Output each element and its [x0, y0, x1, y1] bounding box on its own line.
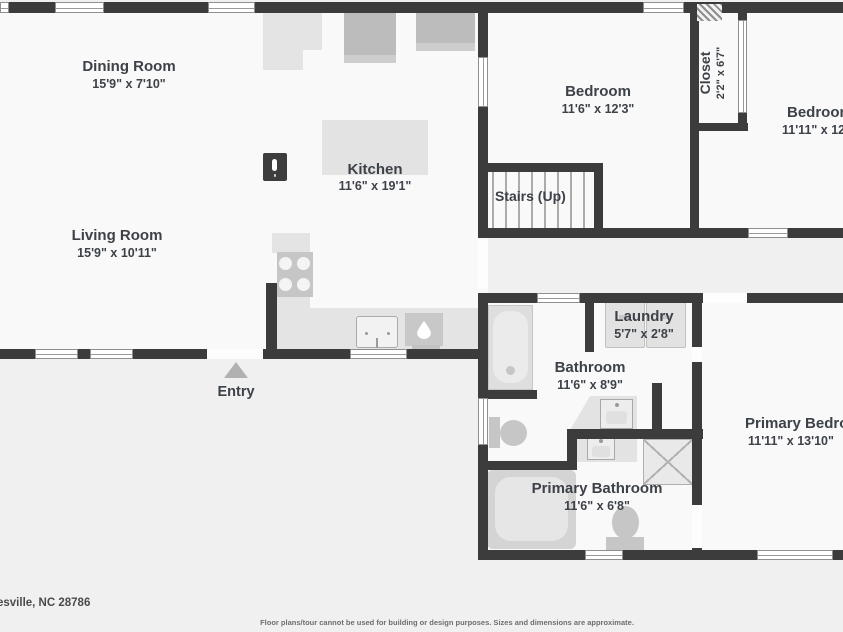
stove-burner [279, 278, 292, 291]
room-dims-kitchen: 11'6" x 19'1" [339, 179, 412, 193]
window-pane-line [758, 555, 832, 556]
room-label-primary-bathroom: Primary Bathroom [532, 480, 663, 497]
refrigerator [344, 13, 396, 55]
sink-faucet [376, 338, 378, 348]
kitchen-counter [272, 233, 310, 253]
window-pane-line [56, 8, 103, 9]
window [748, 228, 788, 238]
sink-faucet [615, 403, 619, 407]
sink-knob [387, 332, 390, 335]
room-dims-laundry: 5'7" x 2'8" [614, 327, 674, 341]
wall [266, 283, 277, 359]
door-opening [692, 505, 702, 548]
wall [478, 461, 577, 470]
wall [567, 429, 703, 439]
wall [738, 2, 747, 22]
vanity-sink [587, 436, 615, 460]
vanity-sink [600, 399, 633, 429]
appliance-handle [416, 43, 475, 51]
window [757, 550, 833, 560]
window-pane-line [743, 21, 744, 112]
address-text: esville, NC 28786 [0, 597, 90, 609]
sink-basin [592, 446, 610, 457]
toilet-tank [489, 417, 500, 448]
toilet-bowl [500, 420, 527, 446]
room-dims-primary-bathroom: 11'6" x 6'8" [564, 499, 630, 513]
window [35, 349, 78, 359]
window-pane-line [209, 8, 254, 9]
wall [478, 293, 843, 303]
disclaimer-text: Floor plans/tour cannot be used for buil… [147, 618, 747, 627]
stair-tread [492, 172, 494, 228]
door-opening [478, 240, 488, 288]
wall [478, 2, 488, 238]
water-appliance [405, 313, 443, 346]
sink-knob [365, 332, 368, 335]
room-label-laundry: Laundry [614, 308, 673, 325]
door-opening [703, 293, 747, 303]
tour-camera-icon[interactable] [263, 153, 287, 181]
shower [643, 439, 693, 485]
tour-camera-lens [272, 159, 277, 171]
bathtub-drain [506, 366, 515, 375]
stove-burner [279, 257, 292, 270]
room-dims-bedroom-1: 11'6" x 12'3" [562, 102, 635, 116]
window [738, 20, 747, 113]
window [478, 398, 488, 445]
kitchen-sink [356, 316, 398, 348]
wall [594, 163, 603, 238]
window [55, 2, 104, 13]
room-label-closet: Closet [697, 33, 715, 113]
room-label-closet-group: Closet 2'2" x 6'7" [697, 33, 735, 113]
window-pane-line [586, 555, 622, 556]
entry-marker-icon [224, 362, 248, 378]
room-label-kitchen: Kitchen [347, 161, 402, 178]
room-label-bedroom-2: Bedroom [787, 104, 843, 121]
room-label-bedroom-1: Bedroom [565, 83, 631, 100]
window-pane-line [483, 399, 484, 444]
refrigerator-handle [344, 55, 396, 63]
wall [478, 163, 603, 172]
entry-label: Entry [217, 384, 254, 400]
door-opening [207, 349, 263, 359]
room-label-dining-room: Dining Room [82, 58, 175, 75]
room-dims-primary-bedroom: 11'11" x 13'10" [748, 434, 834, 448]
kitchen-counter [263, 50, 303, 70]
room-label-bathroom: Bathroom [555, 359, 626, 376]
window [537, 293, 580, 303]
window-pane-line [351, 354, 406, 355]
hatched-area [697, 4, 722, 21]
window [643, 2, 684, 13]
stairs-label: Stairs (Up) [495, 188, 566, 204]
kitchen-counter [263, 13, 322, 50]
window-pane-line [538, 298, 579, 299]
window-pane-line [749, 233, 787, 234]
window-pane-line [91, 354, 132, 355]
sink-faucet [599, 439, 603, 443]
window-pane-line [1, 8, 8, 9]
floor-plan: Dining Room 15'9" x 7'10" Kitchen 11'6" … [0, 0, 843, 632]
room-dims-closet: 2'2" x 6'7" [715, 33, 729, 113]
water-drop-icon [417, 321, 431, 339]
room-label-primary-bedroom: Primary Bedroom [745, 415, 843, 432]
door-opening [692, 347, 702, 362]
window [478, 57, 488, 107]
room-dims-living-room: 15'9" x 10'11" [77, 246, 157, 260]
window [585, 550, 623, 560]
window [90, 349, 133, 359]
window [0, 2, 9, 13]
window-pane-line [36, 354, 77, 355]
stair-tread [583, 172, 585, 228]
window-pane-line [644, 8, 683, 9]
stair-tread [570, 172, 572, 228]
wall [478, 228, 843, 238]
room-dims-bedroom-2: 11'11" x 12' [782, 123, 843, 137]
tour-camera-dot [274, 174, 277, 177]
room-dims-bathroom: 11'6" x 8'9" [557, 378, 623, 392]
stove [277, 252, 313, 297]
window-pane-line [483, 58, 484, 106]
window [208, 2, 255, 13]
window [350, 349, 407, 359]
room-dims-dining-room: 15'9" x 7'10" [92, 77, 165, 91]
wall [585, 293, 594, 352]
sink-basin [606, 411, 627, 424]
wall [738, 111, 747, 131]
stove-burner [297, 257, 310, 270]
room-label-living-room: Living Room [72, 227, 163, 244]
stove-burner [297, 278, 310, 291]
appliance [416, 13, 475, 43]
